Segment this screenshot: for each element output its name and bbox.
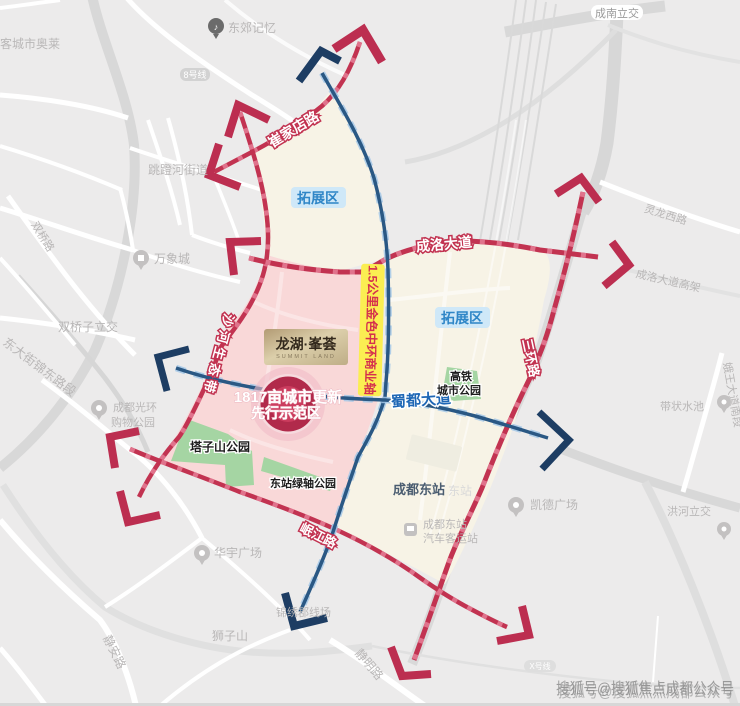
svg-text:华宇广场: 华宇广场	[214, 546, 262, 560]
svg-text:跳蹬河街道: 跳蹬河街道	[148, 163, 208, 177]
svg-text:成都东站: 成都东站	[393, 482, 445, 497]
svg-text:成都东站: 成都东站	[423, 517, 467, 531]
svg-text:先行示范区: 先行示范区	[251, 405, 321, 421]
svg-text:凯德广场: 凯德广场	[530, 497, 578, 512]
svg-text:锦绣郡线场: 锦绣郡线场	[276, 605, 331, 619]
svg-text:东站: 东站	[448, 484, 472, 498]
svg-text:拓展区: 拓展区	[297, 190, 339, 206]
svg-text:♪: ♪	[214, 22, 219, 32]
svg-text:狮子山: 狮子山	[212, 629, 248, 643]
svg-text:洪河立交: 洪河立交	[667, 504, 711, 518]
svg-text:东郊记忆: 东郊记忆	[228, 21, 276, 35]
svg-text:成南立交: 成南立交	[595, 6, 639, 20]
svg-text:汽车客运站: 汽车客运站	[423, 531, 478, 545]
svg-text:客城市奥莱: 客城市奥莱	[0, 36, 60, 51]
svg-text:双桥子立交: 双桥子立交	[58, 319, 118, 334]
svg-text:拓展区: 拓展区	[441, 310, 483, 326]
svg-text:高铁: 高铁	[450, 369, 472, 383]
svg-text:龙湖·峯荟: 龙湖·峯荟	[275, 336, 338, 352]
svg-text:成都光环: 成都光环	[113, 400, 157, 414]
svg-text:城市公园: 城市公园	[437, 383, 481, 397]
svg-text:购物公园: 购物公园	[111, 415, 155, 429]
svg-text:X号线: X号线	[529, 661, 550, 671]
svg-text:带状水池: 带状水池	[660, 399, 704, 413]
svg-text:万象城: 万象城	[154, 252, 190, 266]
svg-text:1817亩城市更新: 1817亩城市更新	[234, 388, 342, 406]
svg-text:搜狐号@搜狐焦点成都公众号: 搜狐号@搜狐焦点成都公众号	[556, 680, 734, 698]
svg-text:塔子山公园: 塔子山公园	[190, 439, 250, 454]
svg-text:SUMMIT LAND: SUMMIT LAND	[276, 354, 336, 360]
svg-text:东站绿轴公园: 东站绿轴公园	[270, 476, 336, 490]
svg-text:8号线: 8号线	[183, 69, 206, 80]
